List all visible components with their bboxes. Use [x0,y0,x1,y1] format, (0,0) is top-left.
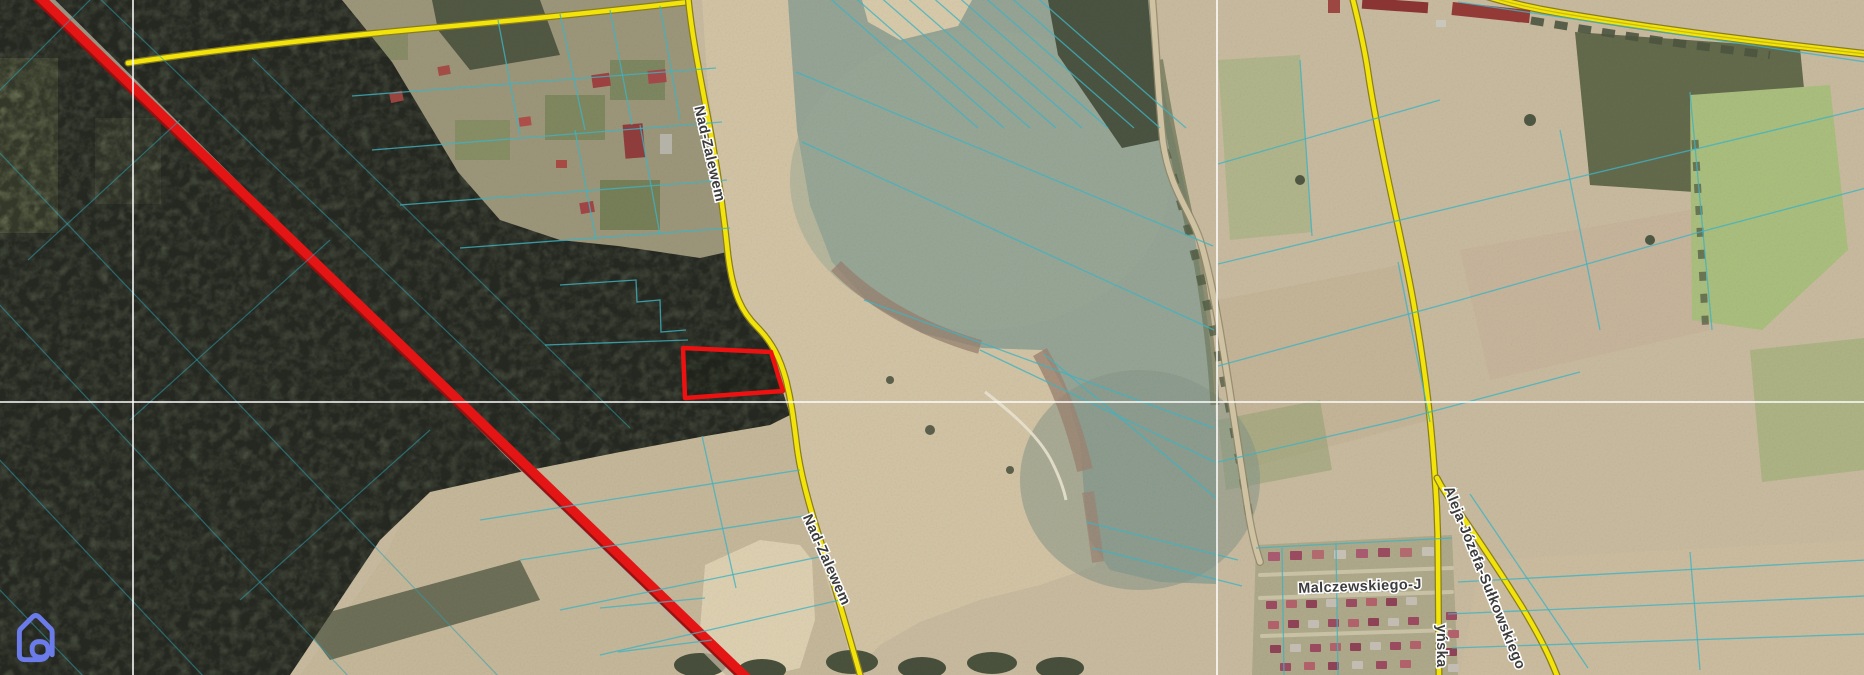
map-canvas[interactable]: Nad-Zalewem Nad-Zalewem Aleja-Józefa-Suł… [0,0,1864,675]
map-viewport[interactable]: Nad-Zalewem Nad-Zalewem Aleja-Józefa-Suł… [0,0,1864,675]
street-label-ynska: yńska [1433,624,1449,668]
selected-parcel-outline[interactable] [683,348,783,398]
